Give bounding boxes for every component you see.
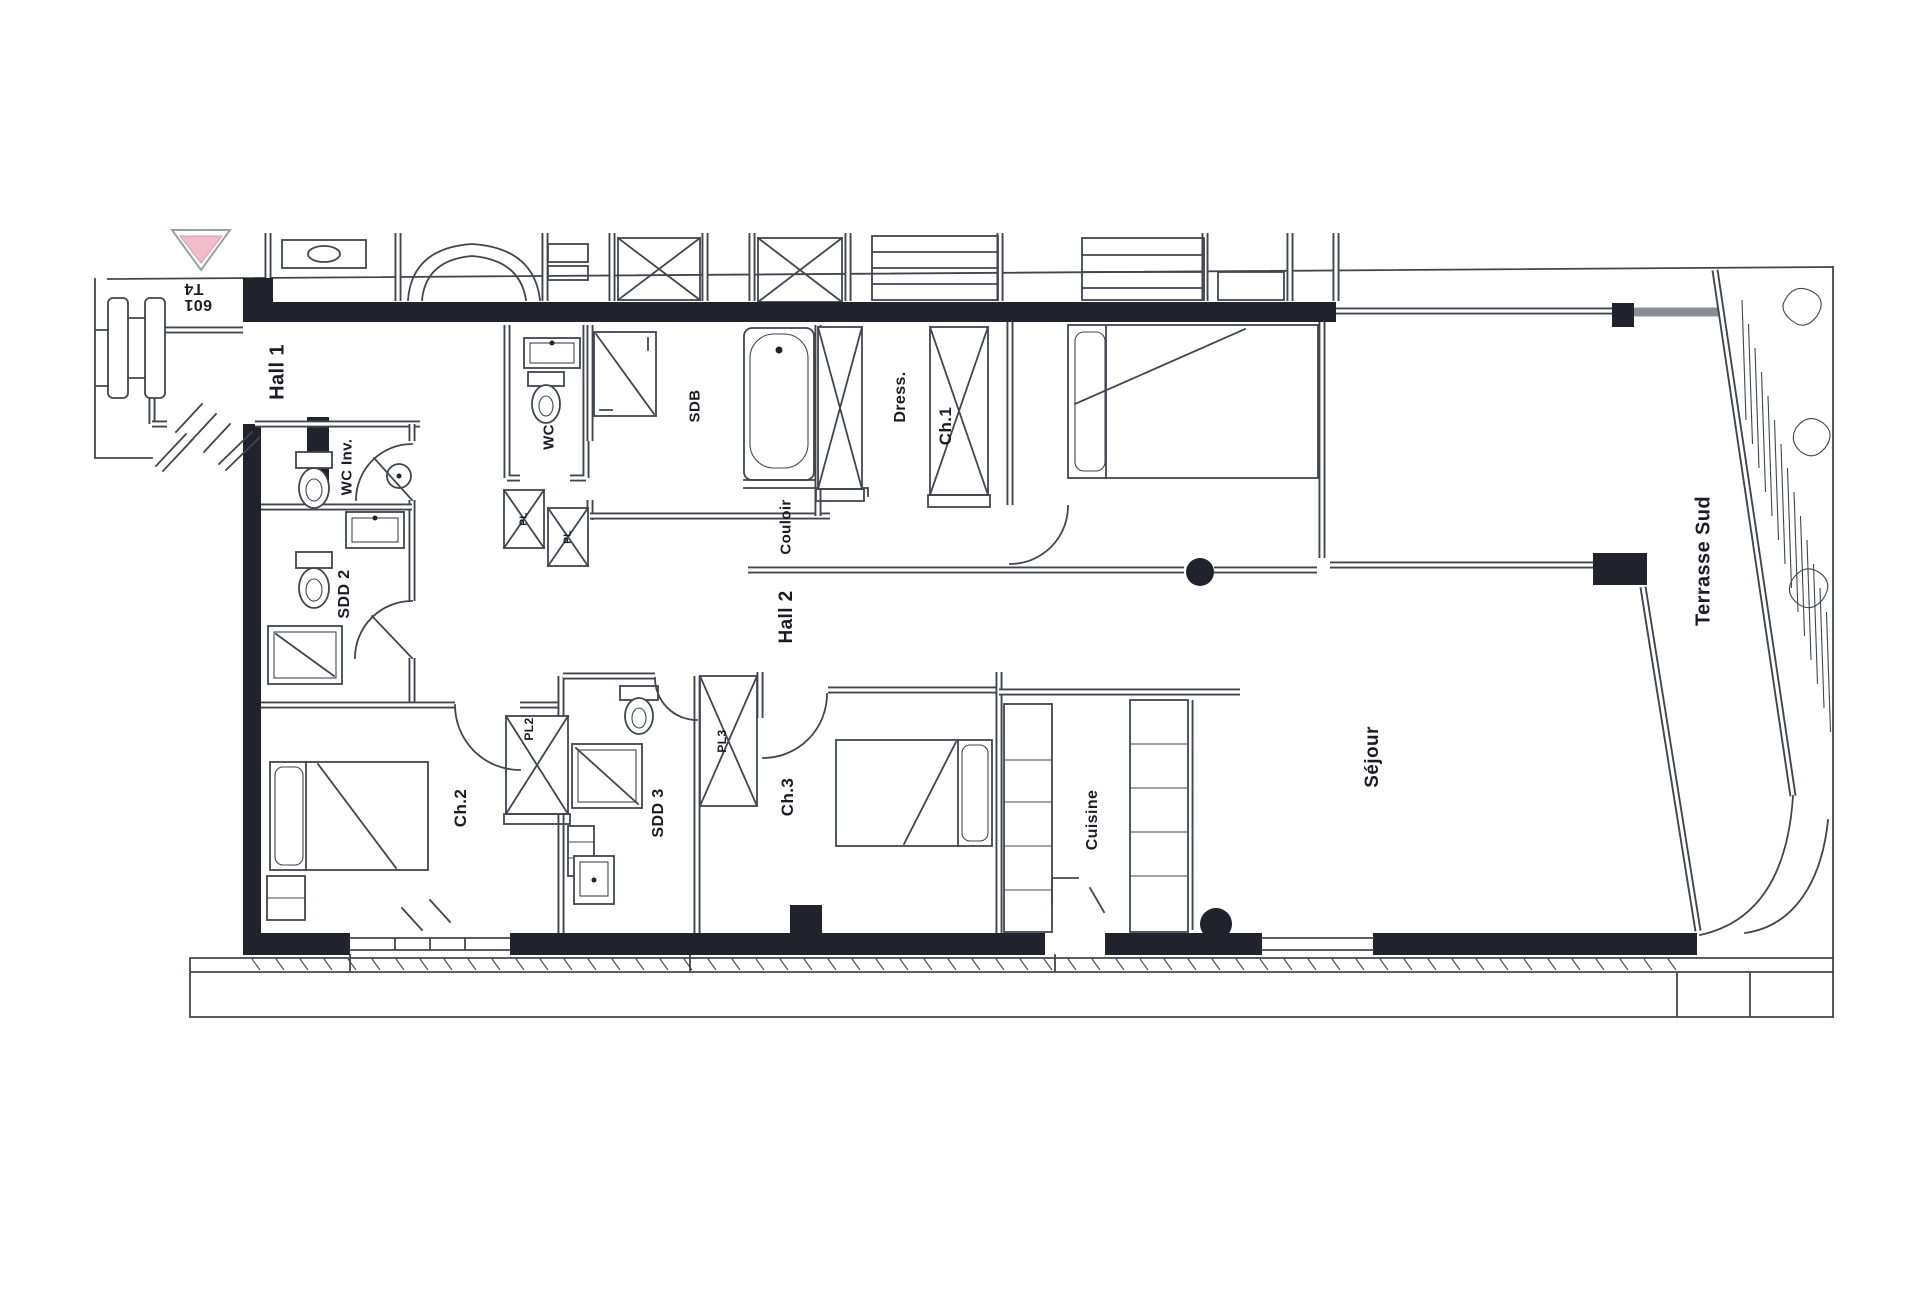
ch2-door-swing-ticks [402,900,450,930]
floor-plan-page: 601 T4 Hall 1 WC Inv. SDD 2 WC PL PL SDB… [0,0,1920,1309]
neighbor-units [268,233,1336,302]
room-label-hall1: Hall 1 [267,344,290,400]
kitchen-terrace-door-mark [1052,878,1104,912]
room-label-ch1: Ch.1 [936,407,956,445]
north-marker-icon [172,230,230,270]
room-label-wc: WC [541,424,558,450]
entry-doors [96,298,259,471]
closet-label-pl3: PL3 [715,729,729,752]
shower-sdd2 [268,626,342,684]
room-label-ch2: Ch.2 [451,789,471,827]
room-label-sejour: Séjour [1362,726,1384,788]
closet-label-pl2: PL2 [522,717,536,740]
room-label-ch3: Ch.3 [778,778,798,816]
closet-label-pl-right: PL [563,530,574,544]
unit-type: T4 [184,280,212,296]
room-label-sdd2: SDD 2 [336,569,354,618]
washbasin-wc [524,338,580,368]
room-label-couloir: Couloir [778,499,795,554]
room-label-sdb: SDB [687,390,704,423]
room-label-dress: Dress. [892,371,910,422]
bed-ch1 [1068,325,1318,478]
closet-label-pl-left: PL [519,512,530,526]
floor-plan-drawing [0,0,1920,1309]
shower-sdb [594,332,656,416]
shower-sdd3 [572,744,642,808]
room-label-terrasse-sud: Terrasse Sud [1693,496,1716,626]
bed-ch3 [836,740,992,846]
unit-number: 601 [184,296,212,312]
room-label-sdd3: SDD 3 [650,788,668,837]
washbasin-sdd3 [574,856,614,904]
terrace-railing [1336,270,1831,935]
toilet-sdd2 [296,552,332,608]
unit-marker-label: 601 T4 [184,280,212,312]
toilet-wc [528,372,564,423]
bed-ch2 [267,762,428,920]
kitchen-tall-units [1004,704,1052,932]
washbasin-sdd2 [346,512,404,548]
closet-dress-left [816,327,864,501]
room-label-wc-inv: WC Inv. [339,439,356,496]
kitchen-counter [1130,700,1188,932]
room-label-cuisine: Cuisine [1084,790,1102,851]
toilet-sdd3 [620,686,658,734]
room-label-hall2: Hall 2 [776,590,798,643]
